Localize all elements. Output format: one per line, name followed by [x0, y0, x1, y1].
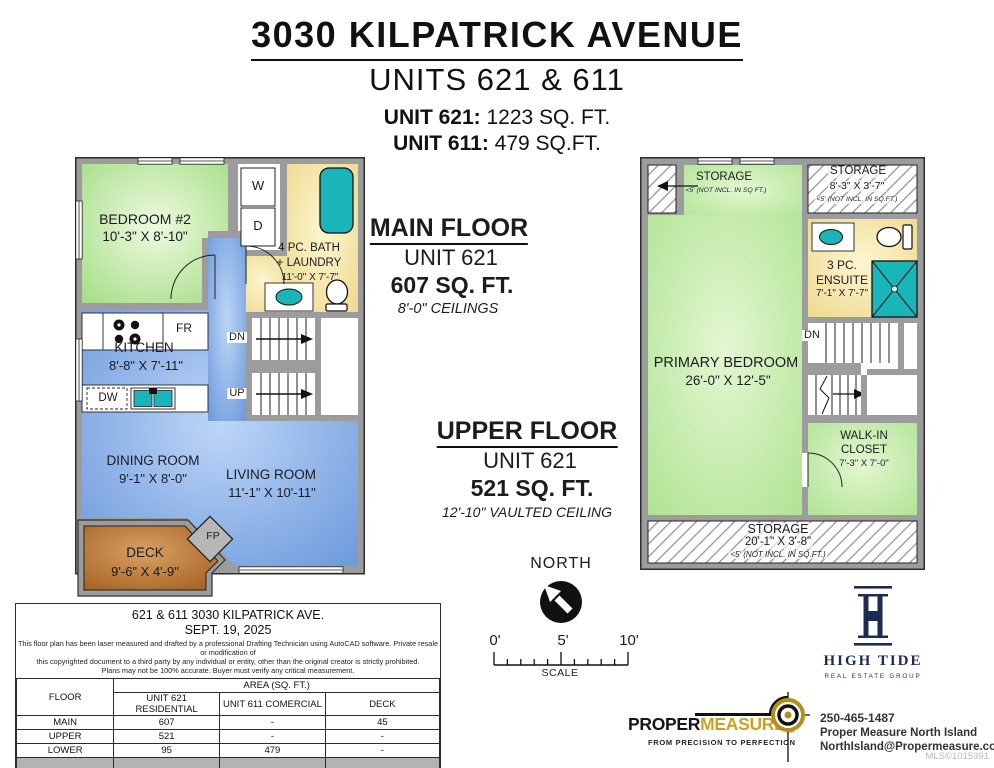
storage-left-label: STORAGE — [696, 172, 752, 184]
unit611-areaLine: UNIT 611: 479 SQ.FT. — [0, 132, 994, 156]
staircase — [808, 323, 917, 423]
unit621-label: UNIT 621: — [384, 106, 481, 129]
stairs-down-label: DN — [227, 332, 247, 343]
washer-label: W — [252, 179, 264, 192]
cell-unit621: 607 — [114, 716, 220, 730]
storage-right-label: STORAGE — [828, 166, 888, 178]
wall-segment — [202, 238, 208, 310]
ensuite-label-1: 3 PC. — [827, 259, 857, 271]
table-title: 621 & 611 3030 KILPATRICK AVE. — [16, 604, 440, 622]
cell-unit611: 479 — [220, 744, 326, 758]
closet-label-1: WALK-IN — [840, 431, 888, 443]
bedroom2-label: BEDROOM #2 — [99, 212, 191, 226]
kitchen-label: KITCHEN — [114, 341, 173, 355]
shower-icon — [872, 261, 917, 317]
storage-bottom-note: <5' (NOT INCL. IN SQ.FT.) — [728, 551, 827, 559]
cell-unit621: 521 — [114, 730, 220, 744]
storage-left-note: <5' (NOT INCL. IN SQ FT.) — [686, 188, 767, 195]
pm-part1: PROPER — [628, 714, 700, 734]
dining-label: DINING ROOM — [107, 454, 200, 468]
cell-floor: LOWER — [17, 744, 114, 758]
main-floor-annotation: MAIN FLOOR — [370, 216, 528, 245]
unit621-value: 1223 SQ. FT. — [486, 106, 610, 129]
hightide-name: HIGH TIDE — [810, 653, 936, 670]
floorplan-sheet: 3030 KILPATRICK AVENUE UNITS 621 & 611 U… — [0, 0, 994, 768]
main-floor-ceiling: 8'-0" CEILINGS — [398, 302, 499, 317]
ensuite-sink-icon — [812, 223, 854, 251]
primary-bedroom-dims: 26'-0" X 12'-5" — [685, 374, 770, 388]
bath-label-1: 4 PC. BATH — [278, 243, 340, 255]
cell-unit621: 95 — [114, 744, 220, 758]
cell-floor: UPPER — [17, 730, 114, 744]
main-floor-title: MAIN FLOOR — [370, 216, 528, 245]
table-row: LOWER 95 479 - — [17, 744, 440, 758]
bathtub-icon — [320, 168, 353, 233]
fireplace-label: FP — [206, 531, 219, 542]
page-title: 3030 KILPATRICK AVENUE — [0, 14, 994, 61]
storage-bottom-dims: 20'-1" X 3'-8" — [743, 537, 813, 549]
unit621-areaLine: UNIT 621: 1223 SQ. FT. — [0, 106, 994, 130]
main-floor-unit: UNIT 621 — [404, 247, 498, 269]
closet-dims: 7'-3" X 7'-0" — [839, 459, 888, 469]
main-floor-area: 607 SQ. FT. — [391, 274, 514, 297]
dining-dims: 9'-1" X 8'-0" — [119, 472, 187, 485]
storage-right-note: <5' (NOT INCL. IN SQ.FT.) — [815, 197, 900, 204]
contact-phone: 250-465-1487 — [820, 711, 990, 725]
staircase — [252, 318, 358, 415]
cell-deck: 45 — [325, 716, 439, 730]
col-header-unit611: UNIT 611 COMERCIAL — [220, 693, 326, 716]
north-compass-icon — [536, 577, 586, 627]
deck-dims: 9'-6" X 4'-9" — [111, 565, 179, 578]
stairs-up-label: UP — [227, 388, 246, 399]
storage-right-dims: 8'-3" X 3'-7" — [828, 181, 887, 192]
unit611-label: UNIT 611: — [393, 132, 489, 155]
cell-deck: - — [325, 744, 439, 758]
cell-deck: - — [325, 730, 439, 744]
contact-company: Proper Measure North Island — [820, 727, 990, 739]
target-icon — [765, 692, 811, 764]
scale-tick-0: 0' — [489, 633, 500, 648]
ensuite-dims: 7'-1" X 7'-7" — [816, 289, 868, 299]
table-date: SEPT. 19, 2025 — [16, 622, 440, 637]
scale-tick-10: 10' — [619, 633, 639, 648]
contact-block: 250-465-1487 Proper Measure North Island… — [820, 711, 990, 753]
bath-label-2: + LAUNDRY — [277, 258, 342, 270]
disclaimer-line-2: this copyrighted document to a third par… — [16, 657, 440, 666]
stairs-down-label: DN — [802, 330, 822, 341]
unit611-value: 479 SQ.FT. — [495, 132, 601, 155]
col-header-deck: DECK — [325, 693, 439, 716]
area-table: FLOOR AREA (SQ. FT.) UNIT 621 RESIDENTIA… — [16, 678, 440, 768]
deck-label: DECK — [126, 546, 164, 560]
upper-floor-annotation: UPPER FLOOR — [437, 419, 618, 448]
units-subtitle: UNITS 621 & 611 — [0, 62, 994, 98]
hightide-tagline: REAL ESTATE GROUP — [810, 673, 936, 680]
ensuite-toilet-icon — [877, 225, 912, 249]
ensuite-label-2: ENSUITE — [816, 274, 868, 286]
bath-dims: 11'-0" X 7'-7" — [282, 273, 339, 283]
scale-tick-5: 5' — [557, 633, 568, 648]
disclaimer-line-3: Plans may not be 100% accurate. Buyer mu… — [16, 666, 440, 675]
upper-floor-area: 521 SQ. FT. — [471, 477, 594, 500]
col-header-area: AREA (SQ. FT.) — [114, 679, 440, 693]
closet-label-2: CLOSET — [841, 445, 887, 457]
table-row: UPPER 521 - - — [17, 730, 440, 744]
north-label: NORTH — [530, 556, 592, 572]
upper-floor-plan: STORAGE <5' (NOT INCL. IN SQ FT.) STORAG… — [640, 157, 925, 582]
primary-bedroom-label: PRIMARY BEDROOM — [654, 356, 799, 371]
scale-label: SCALE — [542, 668, 579, 679]
kitchen-sink-icon — [131, 388, 175, 409]
fridge-label: FR — [176, 322, 192, 334]
hightide-monogram-icon — [849, 586, 897, 646]
dryer-label: D — [253, 219, 262, 232]
area-table-box: 621 & 611 3030 KILPATRICK AVE. SEPT. 19,… — [15, 603, 441, 768]
upper-floor-unit: UNIT 621 — [483, 450, 577, 472]
col-header-unit621: UNIT 621 RESIDENTIAL — [114, 693, 220, 716]
storage-left-area — [648, 165, 676, 213]
cell-unit611: - — [220, 716, 326, 730]
upper-floor-ceiling: 12'-10" VAULTED CEILING — [442, 505, 612, 519]
dishwasher-label: DW — [98, 393, 117, 405]
living-label: LIVING ROOM — [226, 468, 316, 482]
table-row: MAIN 607 - 45 — [17, 716, 440, 730]
table-spacer-row — [17, 758, 440, 768]
storage-bottom-label: STORAGE — [746, 523, 811, 536]
wall-segment — [208, 231, 246, 238]
toilet-icon — [326, 280, 348, 311]
living-dims: 11'-1" X 10'-11" — [228, 486, 315, 499]
mls-number: MLS©1015391 — [925, 751, 989, 762]
kitchen-dims: 8'-8" X 7'-11" — [109, 359, 183, 372]
bedroom2-dims: 10'-3" X 8'-10" — [102, 230, 187, 244]
hightide-logo: HIGH TIDE REAL ESTATE GROUP — [810, 586, 936, 680]
bath-sink-icon — [265, 283, 313, 311]
scale-bar — [492, 650, 632, 668]
disclaimer-line-1: This floor plan has been laser measured … — [16, 639, 440, 657]
cell-unit611: - — [220, 730, 326, 744]
upper-floor-title: UPPER FLOOR — [437, 419, 618, 448]
main-floor-plan: BEDROOM #2 10'-3" X 8'-10" W D 4 PC. BAT… — [75, 157, 365, 600]
cell-floor: MAIN — [17, 716, 114, 730]
address-title: 3030 KILPATRICK AVENUE — [251, 14, 743, 61]
col-header-floor: FLOOR — [17, 679, 114, 716]
